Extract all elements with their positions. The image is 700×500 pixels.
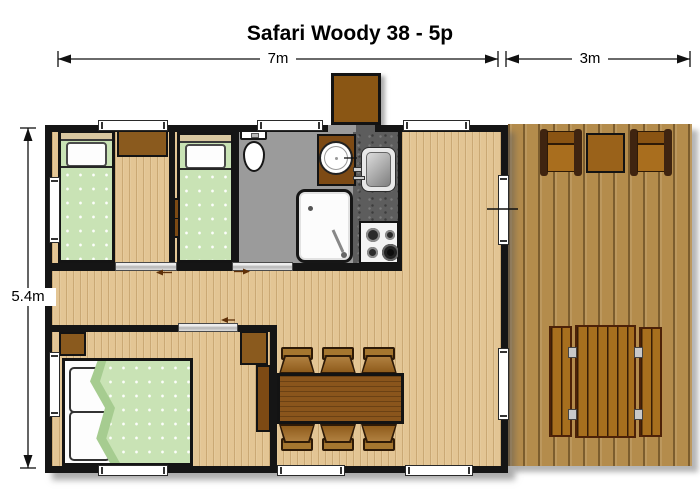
sliding-door-double-bedroom xyxy=(178,323,238,332)
sliding-doors xyxy=(0,0,700,500)
floor-plan: Safari Woody 38 - 5p xyxy=(0,0,700,500)
dimension-terrace-label: 3m xyxy=(572,50,608,67)
dimension-width-label: 7m xyxy=(260,50,296,67)
dimension-depth-label: 5.4m xyxy=(0,288,56,306)
sliding-door-bedroom1 xyxy=(115,262,177,271)
sliding-door-bathroom xyxy=(232,262,293,271)
